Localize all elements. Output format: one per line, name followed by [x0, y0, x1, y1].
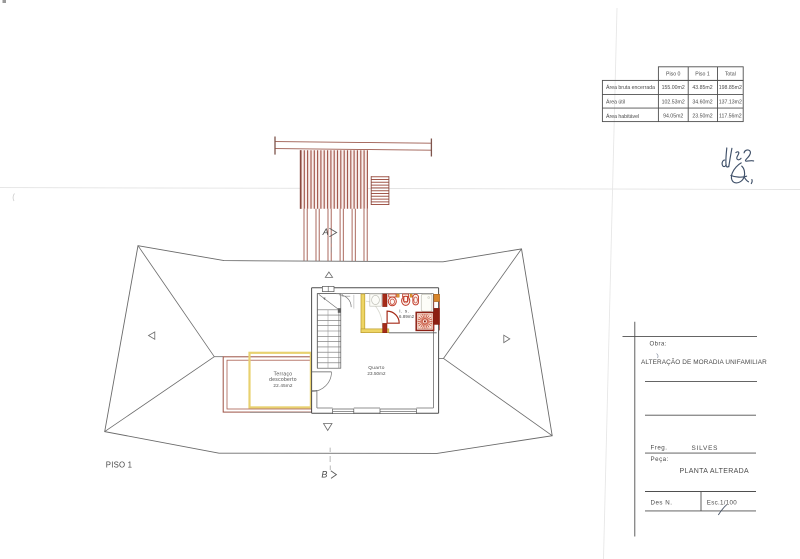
svg-text:Área habitável: Área habitável [606, 113, 639, 120]
svg-text:Área útil: Área útil [606, 99, 625, 106]
svg-text:23.50m2: 23.50m2 [367, 371, 386, 376]
svg-text:Total: Total [725, 71, 736, 77]
svg-text:Freg.: Freg. [651, 445, 668, 452]
svg-text:Obra:: Obra: [650, 342, 668, 348]
svg-text:34.60m2: 34.60m2 [692, 100, 712, 106]
svg-text:PLANTA ALTERADA: PLANTA ALTERADA [680, 468, 750, 475]
svg-text:102.53m2: 102.53m2 [662, 100, 685, 106]
svg-text:B: B [321, 470, 327, 480]
svg-text:Esc.1/100: Esc.1/100 [707, 499, 737, 506]
svg-text:Piso 0: Piso 0 [666, 71, 681, 77]
svg-text:23.50m2: 23.50m2 [692, 114, 712, 120]
svg-text:198.85m2: 198.85m2 [719, 85, 742, 91]
svg-text:ALTERAÇÃO DE MORADIA UNIFAMILI: ALTERAÇÃO DE MORADIA UNIFAMILIAR [641, 357, 767, 366]
svg-text:22.45m2: 22.45m2 [273, 383, 293, 388]
svg-text:43.85m2: 43.85m2 [692, 85, 712, 91]
svg-text:PISO 1: PISO 1 [106, 460, 132, 469]
svg-text:94.05m2: 94.05m2 [663, 114, 683, 120]
svg-text:155.00m2: 155.00m2 [662, 85, 685, 91]
svg-text:I. s.: I. s. [399, 308, 409, 313]
svg-text:Área bruta encerrada: Área bruta encerrada [606, 84, 655, 91]
svg-text:117.56m2: 117.56m2 [719, 114, 742, 120]
svg-text:Piso 1: Piso 1 [695, 71, 710, 77]
svg-text:SILVES: SILVES [692, 445, 719, 452]
svg-text:137.13m2: 137.13m2 [719, 100, 742, 106]
svg-text:6.89m2: 6.89m2 [399, 314, 415, 319]
svg-text:A: A [322, 227, 329, 237]
svg-text:Des N.: Des N. [651, 499, 673, 506]
svg-text:Peça:: Peça: [651, 456, 669, 463]
